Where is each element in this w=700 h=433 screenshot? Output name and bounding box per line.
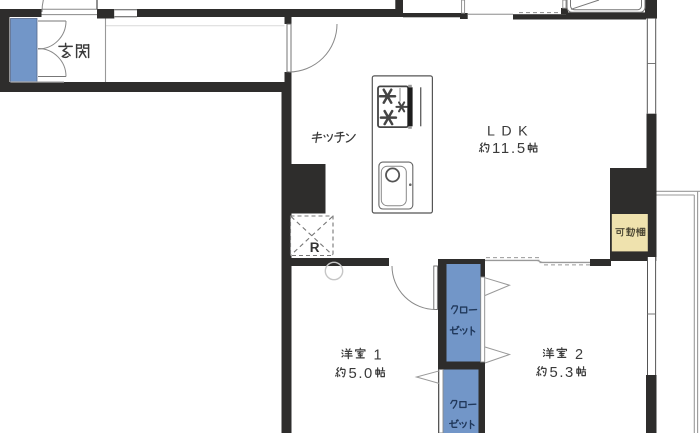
svg-text:11.5: 11.5	[492, 141, 527, 157]
svg-text:2: 2	[575, 347, 583, 363]
svg-text:LDK: LDK	[487, 123, 534, 139]
svg-text:R: R	[310, 240, 320, 255]
svg-text:5.0: 5.0	[349, 366, 374, 382]
svg-text:5.3: 5.3	[550, 365, 575, 381]
svg-text:1: 1	[374, 347, 382, 363]
